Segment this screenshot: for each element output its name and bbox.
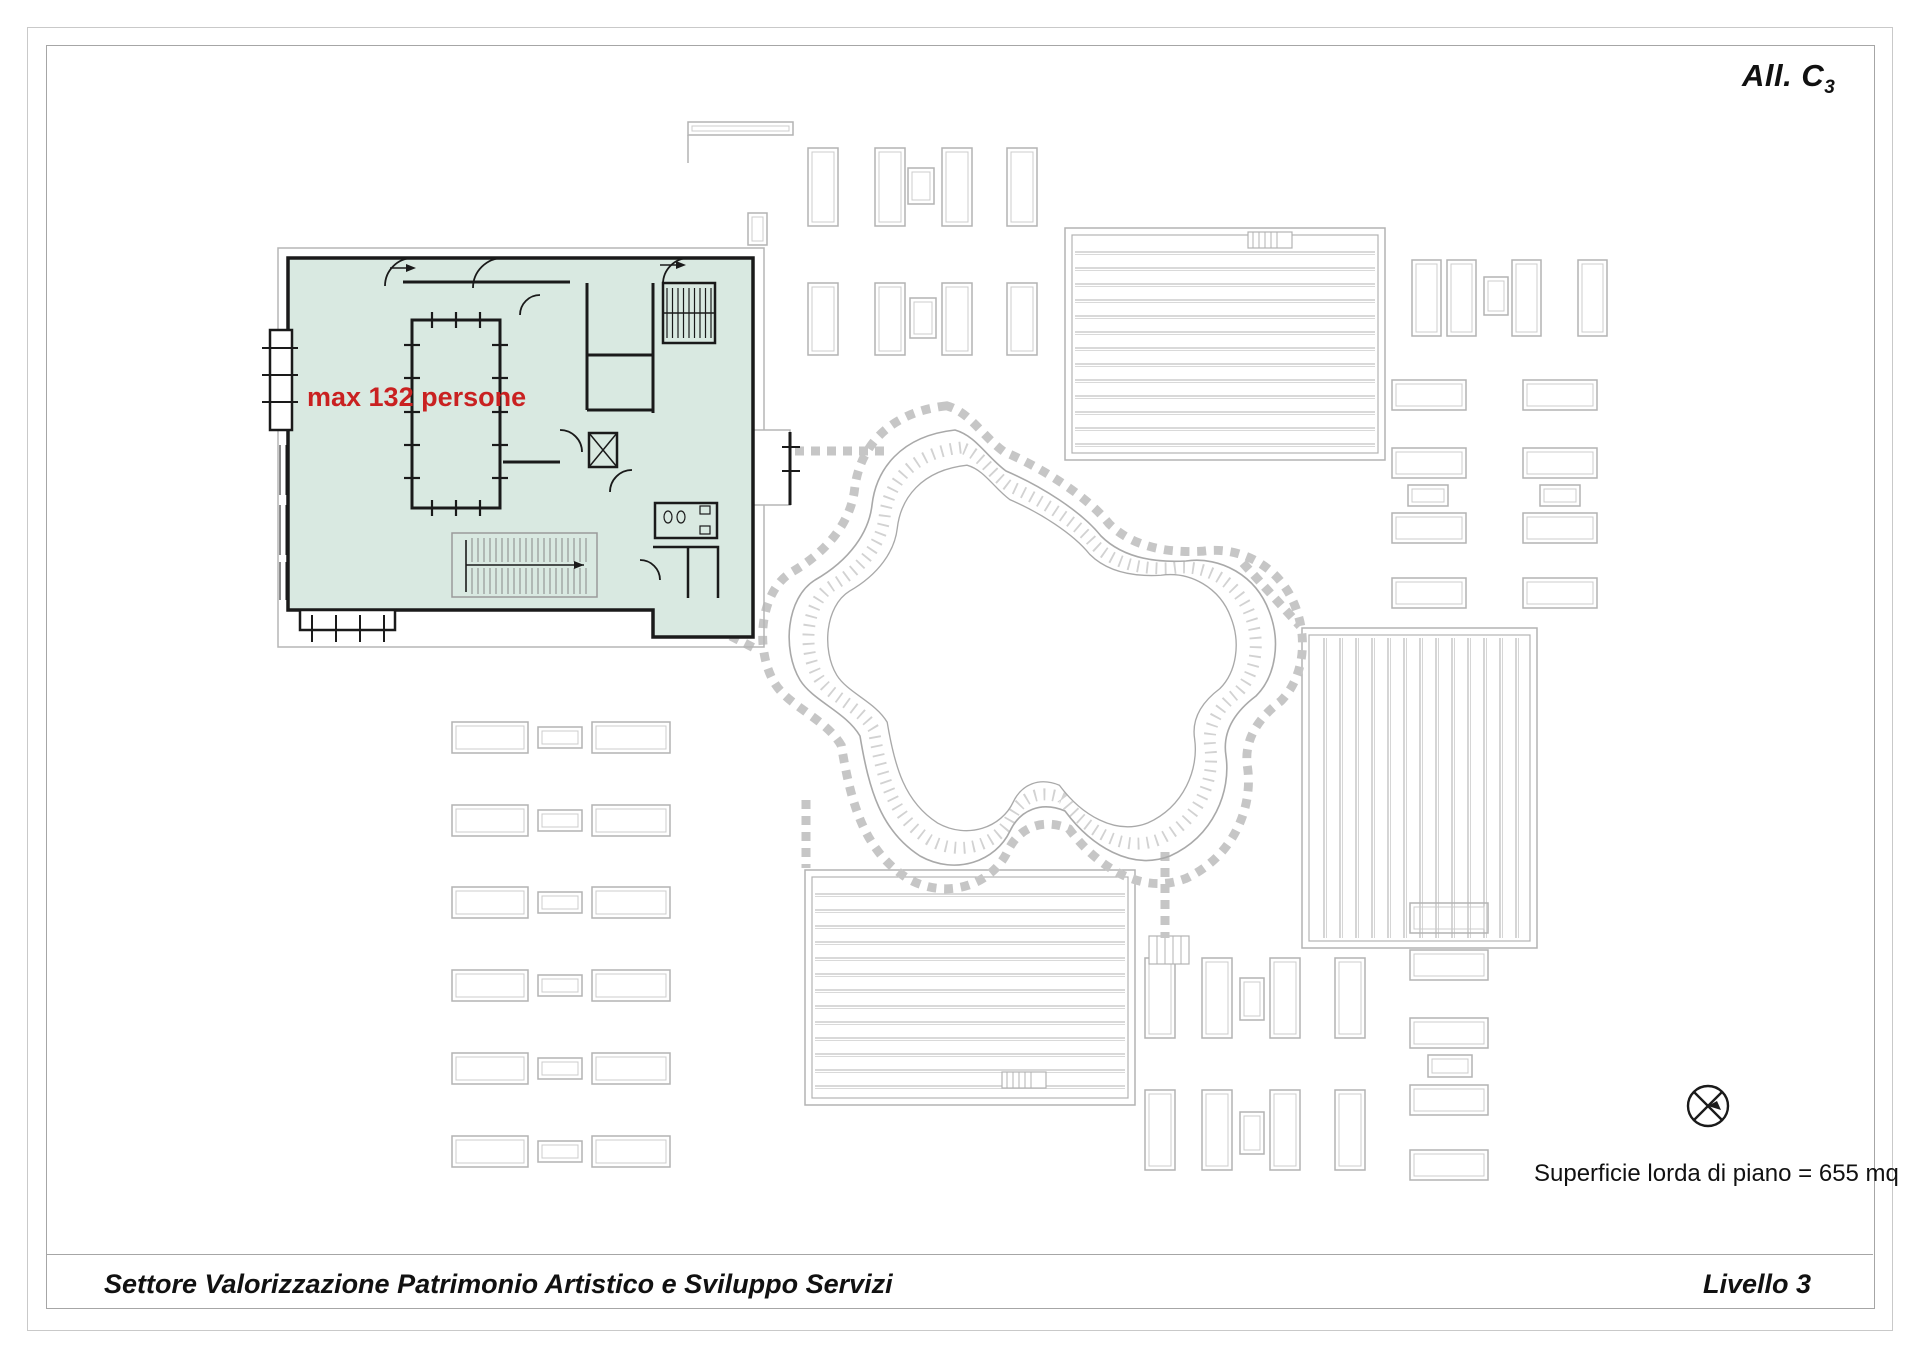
capacity-label: max 132 persone [307, 382, 526, 413]
footer-department: Settore Valorizzazione Patrimonio Artist… [104, 1269, 893, 1300]
attachment-label: All. C3 [1742, 58, 1835, 99]
north-arrow-icon [1688, 1086, 1728, 1126]
attachment-text: All. C [1742, 58, 1824, 93]
area-note: Superficie lorda di piano = 655 mq [1534, 1160, 1899, 1188]
central-ramp-structure [763, 406, 1303, 889]
highlighted-floor-area [262, 248, 800, 647]
floor-plan-drawing [0, 0, 1920, 1357]
footer-level: Livello 3 [1703, 1269, 1811, 1300]
attachment-subscript: 3 [1824, 77, 1835, 98]
